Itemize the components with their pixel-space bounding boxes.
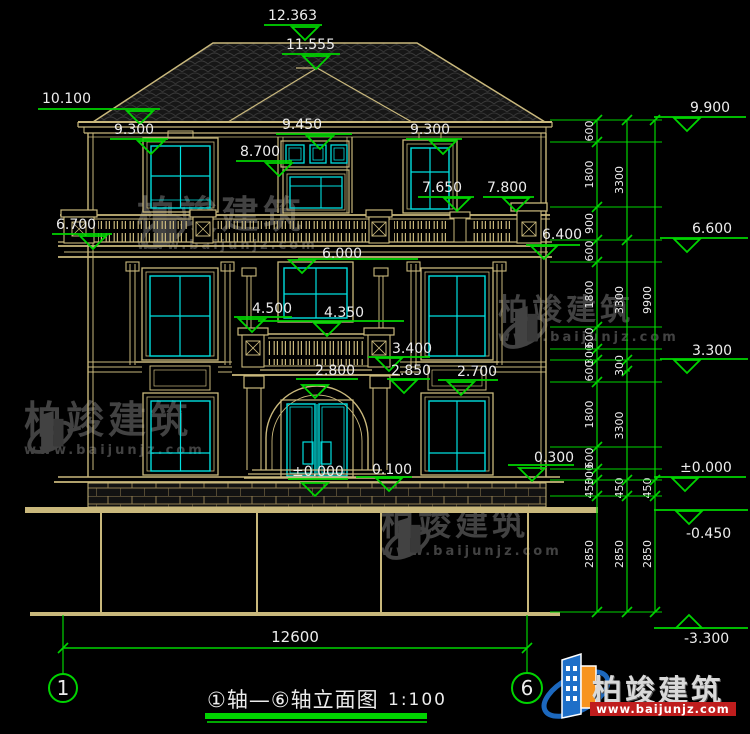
elevation-marker: ±0.000 — [654, 460, 746, 491]
elevation-marker: 3.300 — [660, 343, 748, 373]
elevation-value: 3.400 — [392, 341, 432, 357]
axis-number: 6 — [521, 676, 534, 700]
axis-bubble: 1 — [49, 674, 77, 702]
overall-width-value: 12600 — [271, 628, 319, 646]
dimension-value: 3300 — [613, 166, 626, 194]
title-underline-thick — [205, 713, 427, 719]
elevation-value: 9.900 — [690, 100, 730, 116]
elevation-value: 4.350 — [324, 305, 364, 321]
elevation-value: 0.300 — [534, 450, 574, 466]
elevation-value: 8.700 — [240, 144, 280, 160]
dimension-value: 450 — [583, 478, 596, 499]
elevation-marker: -0.450 — [654, 510, 748, 542]
elevation-marker: 2.800 — [296, 363, 358, 398]
elevation-value: 9.300 — [410, 122, 450, 138]
elevation-marker: -3.300 — [654, 615, 748, 647]
dimension-value: 600 — [583, 121, 596, 142]
dimension-value: 2850 — [641, 540, 654, 568]
dimension-value: 450 — [641, 478, 654, 499]
dimension-value: 3300 — [613, 286, 626, 314]
elevation-marker: 12.363 — [264, 8, 322, 40]
cad-elevation-sheet: 柏竣建筑 www.baijunjz.com 柏竣建筑 www.baijunjz.… — [0, 0, 750, 734]
brand-url: www.baijunjz.com — [590, 702, 736, 716]
elevation-marker: 8.700 — [236, 144, 292, 176]
dimension-value: 2850 — [583, 540, 596, 568]
dimension-value: 9900 — [641, 286, 654, 314]
dimension-value: 300 — [613, 355, 626, 376]
elevation-marker: 2.850 — [387, 363, 431, 393]
elevation-value: 9.300 — [114, 122, 154, 138]
dimension-value: 2850 — [613, 540, 626, 568]
elevation-value: 9.450 — [282, 117, 322, 133]
dimension-value: 1800 — [583, 161, 596, 189]
dimension-chain: 99004502850 — [641, 115, 660, 617]
elevation-value: 6.400 — [542, 227, 582, 243]
dimension-value: 1800 — [583, 401, 596, 429]
overall-width-dimension: 12600 — [58, 615, 532, 674]
title-underline-thin — [207, 721, 427, 723]
dimension-chain: 6001800900600180060030060018006003004502… — [583, 115, 602, 617]
brand-logo[interactable]: 柏竣建筑 www.baijunjz.com — [536, 646, 748, 732]
dimension-value: 1800 — [583, 281, 596, 309]
elevation-value: 6.600 — [692, 221, 732, 237]
elevation-value: -0.450 — [686, 526, 731, 542]
elevation-value: ±0.000 — [292, 464, 344, 480]
view-scale: 1:100 — [388, 690, 447, 710]
elevation-value: 2.800 — [315, 363, 355, 379]
elevation-value: 6.000 — [322, 246, 362, 262]
elevation-value: -3.300 — [684, 631, 729, 647]
dimension-value: 600 — [583, 361, 596, 382]
elevation-drawing: 12.36311.55510.1009.3009.4509.3008.7007.… — [0, 0, 750, 734]
elevation-value: 7.650 — [422, 180, 462, 196]
axis-number: 1 — [57, 676, 70, 700]
dimension-value: 600 — [583, 241, 596, 262]
view-title: ①轴—⑥轴立面图 — [207, 684, 379, 714]
elevation-value: 4.500 — [252, 301, 292, 317]
elevation-value: 3.300 — [692, 343, 732, 359]
elevation-marker: 9.900 — [654, 100, 746, 131]
elevation-value: 6.700 — [56, 217, 96, 233]
dimension-value: 3300 — [613, 412, 626, 440]
elevation-marker: 7.650 — [418, 180, 474, 211]
elevation-value: 2.850 — [391, 363, 431, 379]
elevation-value: 0.100 — [372, 462, 412, 478]
elevation-value: 11.555 — [286, 37, 335, 53]
elevation-value: 2.700 — [457, 364, 497, 380]
elevation-marker: 6.600 — [660, 221, 748, 252]
dimension-chain: 3300330030033004502850 — [613, 115, 632, 617]
elevation-marker: 4.500 — [234, 301, 292, 332]
elevation-value: ±0.000 — [680, 460, 732, 476]
dimension-value: 900 — [583, 213, 596, 234]
elevation-value: 10.100 — [42, 91, 91, 107]
elevation-value: 12.363 — [268, 8, 317, 24]
elevation-value: 7.800 — [487, 180, 527, 196]
dimension-value: 450 — [613, 478, 626, 499]
